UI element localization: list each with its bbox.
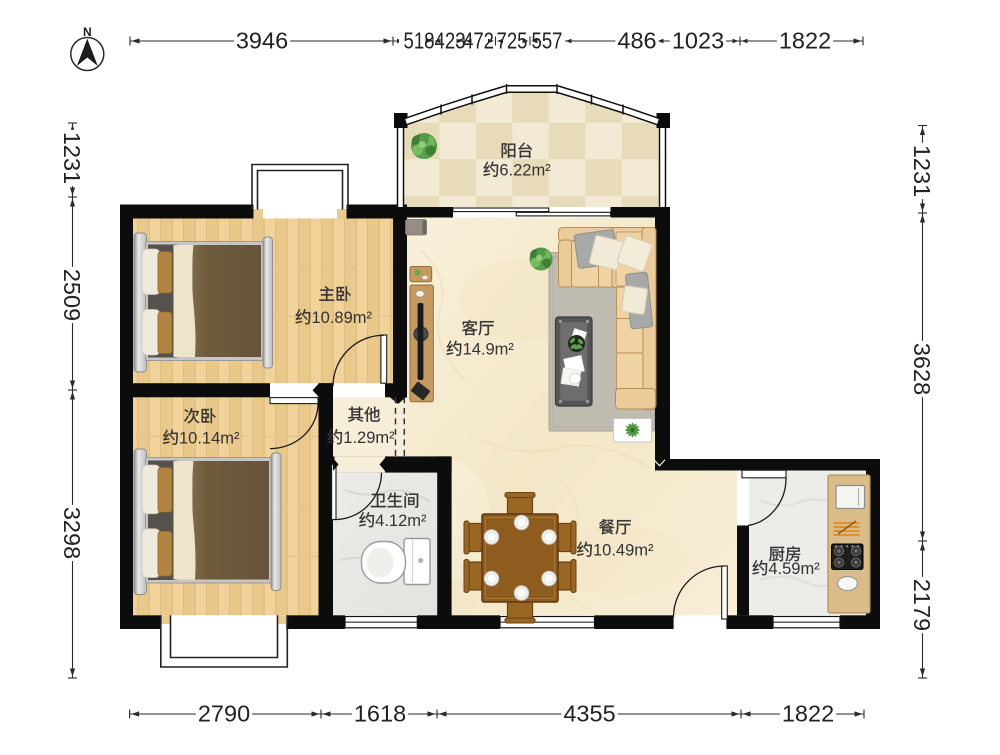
svg-text:4355: 4355 bbox=[563, 701, 615, 727]
svg-text:10.49m²: 10.49m² bbox=[593, 542, 654, 560]
svg-text:725: 725 bbox=[497, 28, 528, 54]
svg-text:4.59m²: 4.59m² bbox=[768, 560, 820, 578]
svg-text:472: 472 bbox=[463, 28, 494, 54]
svg-text:4.12m²: 4.12m² bbox=[375, 512, 427, 530]
svg-text:1822: 1822 bbox=[782, 701, 834, 727]
svg-text:1231: 1231 bbox=[59, 132, 85, 184]
svg-text:1023: 1023 bbox=[672, 28, 724, 54]
svg-text:557: 557 bbox=[532, 28, 563, 54]
svg-text:14.9m²: 14.9m² bbox=[463, 341, 515, 359]
svg-text:423: 423 bbox=[435, 28, 466, 54]
svg-text:3298: 3298 bbox=[59, 507, 85, 559]
svg-text:10.14m²: 10.14m² bbox=[179, 430, 240, 448]
svg-text:1618: 1618 bbox=[354, 701, 406, 727]
svg-text:1231: 1231 bbox=[909, 145, 935, 197]
svg-text:1.29m²: 1.29m² bbox=[343, 429, 395, 447]
svg-text:2509: 2509 bbox=[59, 269, 85, 321]
svg-text:6.22m²: 6.22m² bbox=[499, 162, 551, 180]
svg-text:3628: 3628 bbox=[909, 343, 935, 395]
svg-text:1822: 1822 bbox=[779, 28, 831, 54]
svg-text:518: 518 bbox=[404, 28, 435, 54]
svg-text:486: 486 bbox=[617, 28, 656, 54]
svg-text:N: N bbox=[83, 25, 92, 39]
svg-text:2790: 2790 bbox=[198, 701, 250, 727]
svg-text:10.89m²: 10.89m² bbox=[311, 309, 372, 327]
svg-text:2179: 2179 bbox=[909, 579, 935, 631]
svg-text:3946: 3946 bbox=[236, 28, 288, 54]
